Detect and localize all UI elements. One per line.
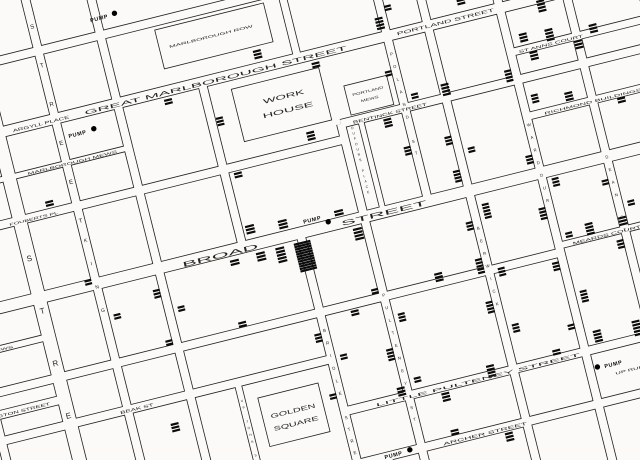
snow-cholera-map: ARGYLL PLACEGREAT MARLBOROUGH STREETPORT…: [0, 0, 640, 460]
map-container: ARGYLL PLACEGREAT MARLBOROUGH STREETPORT…: [0, 0, 640, 460]
